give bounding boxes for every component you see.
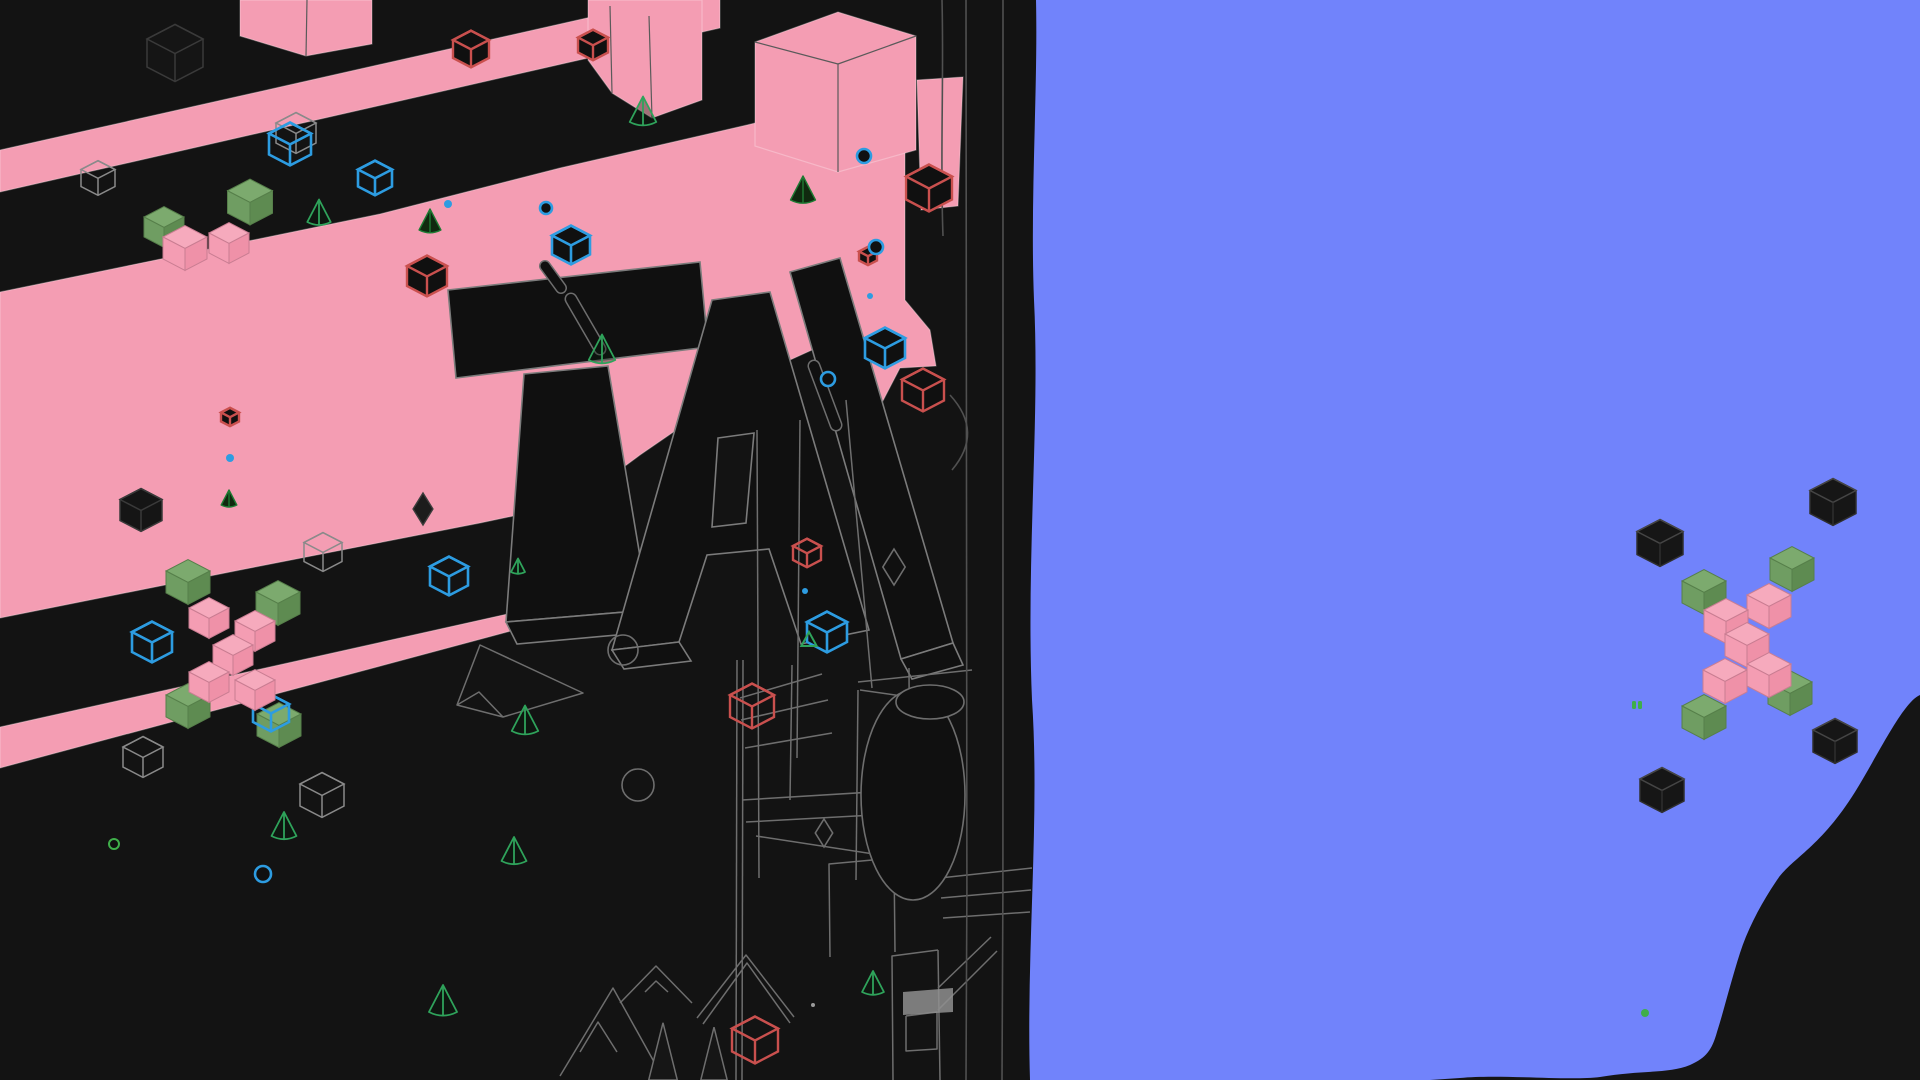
green-ring bbox=[109, 839, 119, 849]
blue-wireframe-cube bbox=[552, 226, 590, 265]
blue-ring bbox=[540, 202, 552, 214]
red-wireframe-cube bbox=[902, 369, 944, 412]
green-pip bbox=[1638, 701, 1642, 709]
red-wireframe-cube bbox=[578, 30, 608, 61]
dome-outline bbox=[861, 690, 965, 900]
blue-ring bbox=[869, 240, 883, 254]
dome-outline bbox=[896, 685, 964, 719]
red-wireframe-cube bbox=[453, 31, 489, 68]
blue-wireframe-cube bbox=[865, 328, 905, 369]
blue-dot bbox=[802, 588, 808, 594]
game-viewport[interactable] bbox=[0, 0, 1920, 1080]
gray-dot bbox=[811, 1003, 815, 1007]
red-wireframe-cube bbox=[906, 165, 952, 212]
blue-ring bbox=[821, 372, 835, 386]
red-wireframe-cube bbox=[221, 408, 239, 426]
water-blue-region bbox=[1029, 0, 1920, 1080]
green-dot bbox=[1641, 1009, 1649, 1017]
blue-dot bbox=[867, 293, 873, 299]
hero-pink-cube bbox=[755, 12, 916, 172]
blue-ring bbox=[857, 149, 871, 163]
green-pip bbox=[1632, 701, 1636, 709]
machine-gray-panel bbox=[903, 988, 953, 1015]
game-scene-canvas[interactable] bbox=[0, 0, 1920, 1080]
blue-ring bbox=[255, 866, 271, 882]
blue-dot bbox=[444, 200, 452, 208]
red-wireframe-cube bbox=[407, 256, 447, 297]
blue-dot bbox=[226, 454, 234, 462]
wire-line bbox=[736, 660, 737, 1080]
